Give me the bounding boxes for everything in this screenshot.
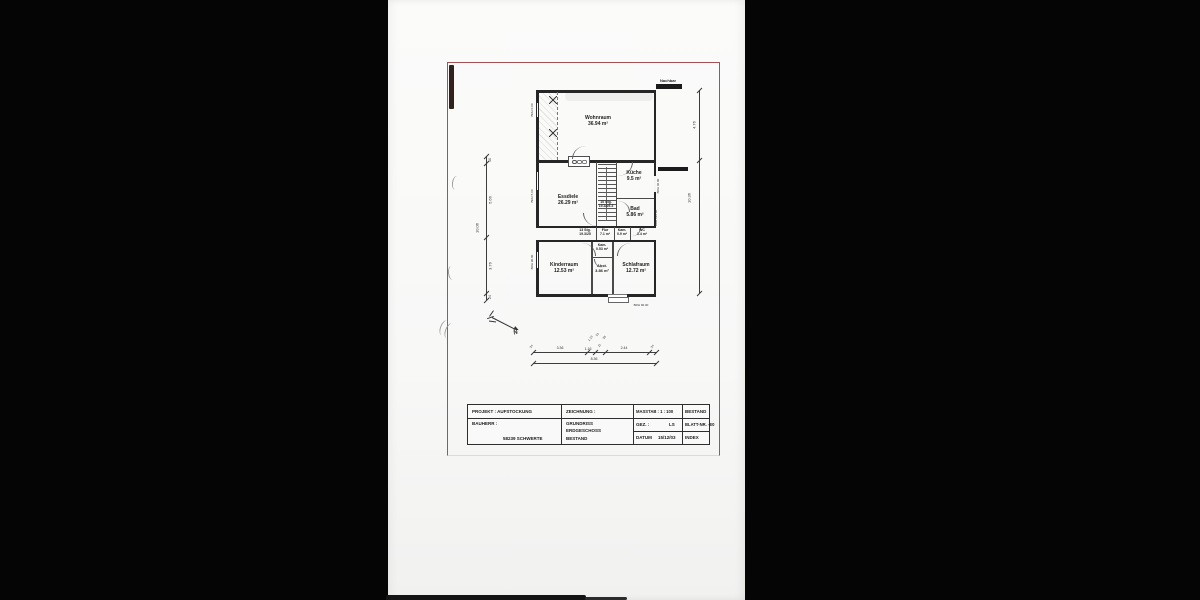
room-label-kinderraum: Kinderraum 12.53 m² bbox=[550, 262, 578, 275]
wall-segment bbox=[536, 294, 656, 297]
wall-segment bbox=[596, 227, 597, 240]
stair-dims: 19.3/25.3 bbox=[599, 204, 614, 208]
room-label-schlafraum: Schlafraum 12.72 m² bbox=[622, 262, 649, 275]
stair-walkline bbox=[606, 167, 607, 221]
brh-label: BRH 0.00 bbox=[531, 103, 535, 116]
room-label-flur: Flur 7.1 m² bbox=[600, 228, 610, 237]
dim-label: 4.76 bbox=[692, 121, 697, 129]
title-block-divider bbox=[561, 405, 562, 444]
brh-label: BRH 90.00 bbox=[634, 304, 649, 308]
wall-segment bbox=[612, 242, 614, 294]
dimension-line-right bbox=[699, 90, 700, 293]
zeichnung-label: ZEICHNUNG : bbox=[566, 409, 596, 414]
neighbor-label: Nachbar bbox=[660, 78, 676, 83]
neighbor-wall-bar bbox=[656, 84, 682, 89]
room-area: 12.53 m² bbox=[550, 268, 578, 274]
wall-segment bbox=[654, 240, 657, 296]
dim-label-overall: 8.36 bbox=[591, 357, 598, 361]
datum-label: DATUM bbox=[636, 435, 652, 440]
room-label-wohnraum: Wohnraum 36.94 m² bbox=[585, 115, 611, 128]
title-block-divider bbox=[682, 405, 683, 444]
gez-label: GEZ. : bbox=[636, 422, 649, 427]
dim-label: 24 bbox=[488, 295, 492, 299]
room-area: 3.86 m² bbox=[595, 268, 609, 273]
room-label-kam-flur: Kam. 0.9 m² bbox=[617, 228, 627, 237]
room-label-bad: Bad 5.86 m² bbox=[626, 206, 643, 219]
wall-segment bbox=[536, 240, 539, 296]
room-area: 12.72 m² bbox=[622, 268, 649, 274]
room-area: 26.29 m² bbox=[558, 200, 578, 206]
window-x-symbol bbox=[549, 129, 557, 137]
window bbox=[537, 252, 538, 268]
room-label-kam: Kam. 0.53 m² bbox=[596, 243, 608, 252]
datum-value: 15/12/03 bbox=[658, 435, 676, 440]
brh-label: BRH 90.00 bbox=[531, 255, 535, 270]
dim-label: 5.66 bbox=[488, 196, 493, 204]
room-label-kueche: Küche 9.5 m² bbox=[626, 170, 641, 183]
wall-segment bbox=[616, 162, 617, 226]
room-area: 0.53 m² bbox=[596, 247, 608, 251]
wall-segment bbox=[536, 240, 656, 242]
brh-label: BRH 5.00 bbox=[531, 189, 535, 202]
projekt-label: PROJEKT : AUFSTOCKUNG bbox=[472, 409, 532, 414]
dimension-line-left bbox=[486, 156, 487, 300]
title-block-divider bbox=[633, 431, 709, 432]
dim-label: 3.76 bbox=[488, 262, 493, 270]
stair-label-upper: 10 Stg. 19.3/25.3 bbox=[599, 200, 614, 209]
dim-label-overall: 10.36 bbox=[687, 193, 692, 203]
vestibule-dots bbox=[572, 160, 577, 165]
wall-segment bbox=[630, 227, 631, 240]
binding-fold-mark bbox=[449, 65, 454, 109]
dimension-line-bottom-overall bbox=[533, 363, 657, 364]
room-area: 1.4 m² bbox=[637, 232, 647, 236]
title-block-divider bbox=[468, 418, 709, 419]
window-x-symbol bbox=[549, 96, 557, 104]
room-label-essdiele: Essdiele 26.29 m² bbox=[558, 194, 578, 207]
wall-segment bbox=[614, 227, 615, 240]
zeichnung-line-1: GRUNDRISS bbox=[566, 421, 593, 426]
dim-label: 3.36 bbox=[557, 346, 564, 350]
brh-label: BRH 40.00 bbox=[657, 179, 661, 194]
room-label-abst: Abst. 3.86 m² bbox=[595, 263, 609, 273]
dim-label: 1.16 bbox=[585, 347, 592, 351]
bauherr-label: BAUHERR : bbox=[472, 421, 497, 426]
dim-label: 2.44 bbox=[621, 346, 628, 350]
title-block-divider bbox=[633, 405, 634, 444]
neighbor-wall-bar bbox=[658, 167, 688, 171]
wall-segment bbox=[536, 160, 539, 228]
scan-artifact bbox=[386, 595, 586, 600]
bauherr-city: 58239 SCHWERTE bbox=[503, 436, 543, 441]
room-area: 9.5 m² bbox=[626, 176, 641, 182]
room-area: 5.86 m² bbox=[626, 212, 643, 218]
room-label-wc: WC 1.4 m² bbox=[637, 228, 647, 237]
window bbox=[537, 172, 538, 190]
room-area: 36.94 m² bbox=[585, 121, 611, 127]
wall-segment bbox=[654, 90, 657, 162]
stair-dims: 19.3/25 bbox=[579, 232, 591, 236]
title-block: PROJEKT : AUFSTOCKUNG ZEICHNUNG : MASSTA… bbox=[467, 404, 710, 445]
index-label: INDEX bbox=[685, 435, 699, 440]
scan-viewer-background: Wohnraum 36.94 m² Essdiele 26.29 m² Küch… bbox=[0, 0, 1200, 600]
masstab-label: MASSTAB : 1 : 100 bbox=[636, 409, 673, 414]
gez-value: LS bbox=[669, 422, 675, 427]
drawing-border-frame bbox=[447, 62, 720, 456]
stair-label-lower: 13 Stg. 19.3/25 bbox=[579, 228, 591, 237]
zeichnung-line-3: BESTAND bbox=[566, 436, 587, 441]
brh-label: BRH 126.00 bbox=[655, 210, 659, 226]
blatt-nr-label: BLATT-NR. -E0 bbox=[685, 422, 714, 427]
room-area: 7.1 m² bbox=[600, 232, 610, 236]
ghost-stamp-smear bbox=[565, 92, 653, 101]
bestand-label: BESTAND bbox=[685, 409, 706, 414]
wall-segment bbox=[617, 198, 654, 199]
dim-label: 40 bbox=[488, 158, 492, 162]
wall-segment bbox=[591, 257, 612, 258]
dim-label-overall: 10.06 bbox=[475, 223, 480, 233]
terrace-divider bbox=[557, 92, 558, 160]
window-sill bbox=[608, 297, 629, 303]
room-area: 0.9 m² bbox=[617, 232, 627, 236]
zeichnung-line-2: ERDGESCHOSS bbox=[566, 428, 601, 433]
